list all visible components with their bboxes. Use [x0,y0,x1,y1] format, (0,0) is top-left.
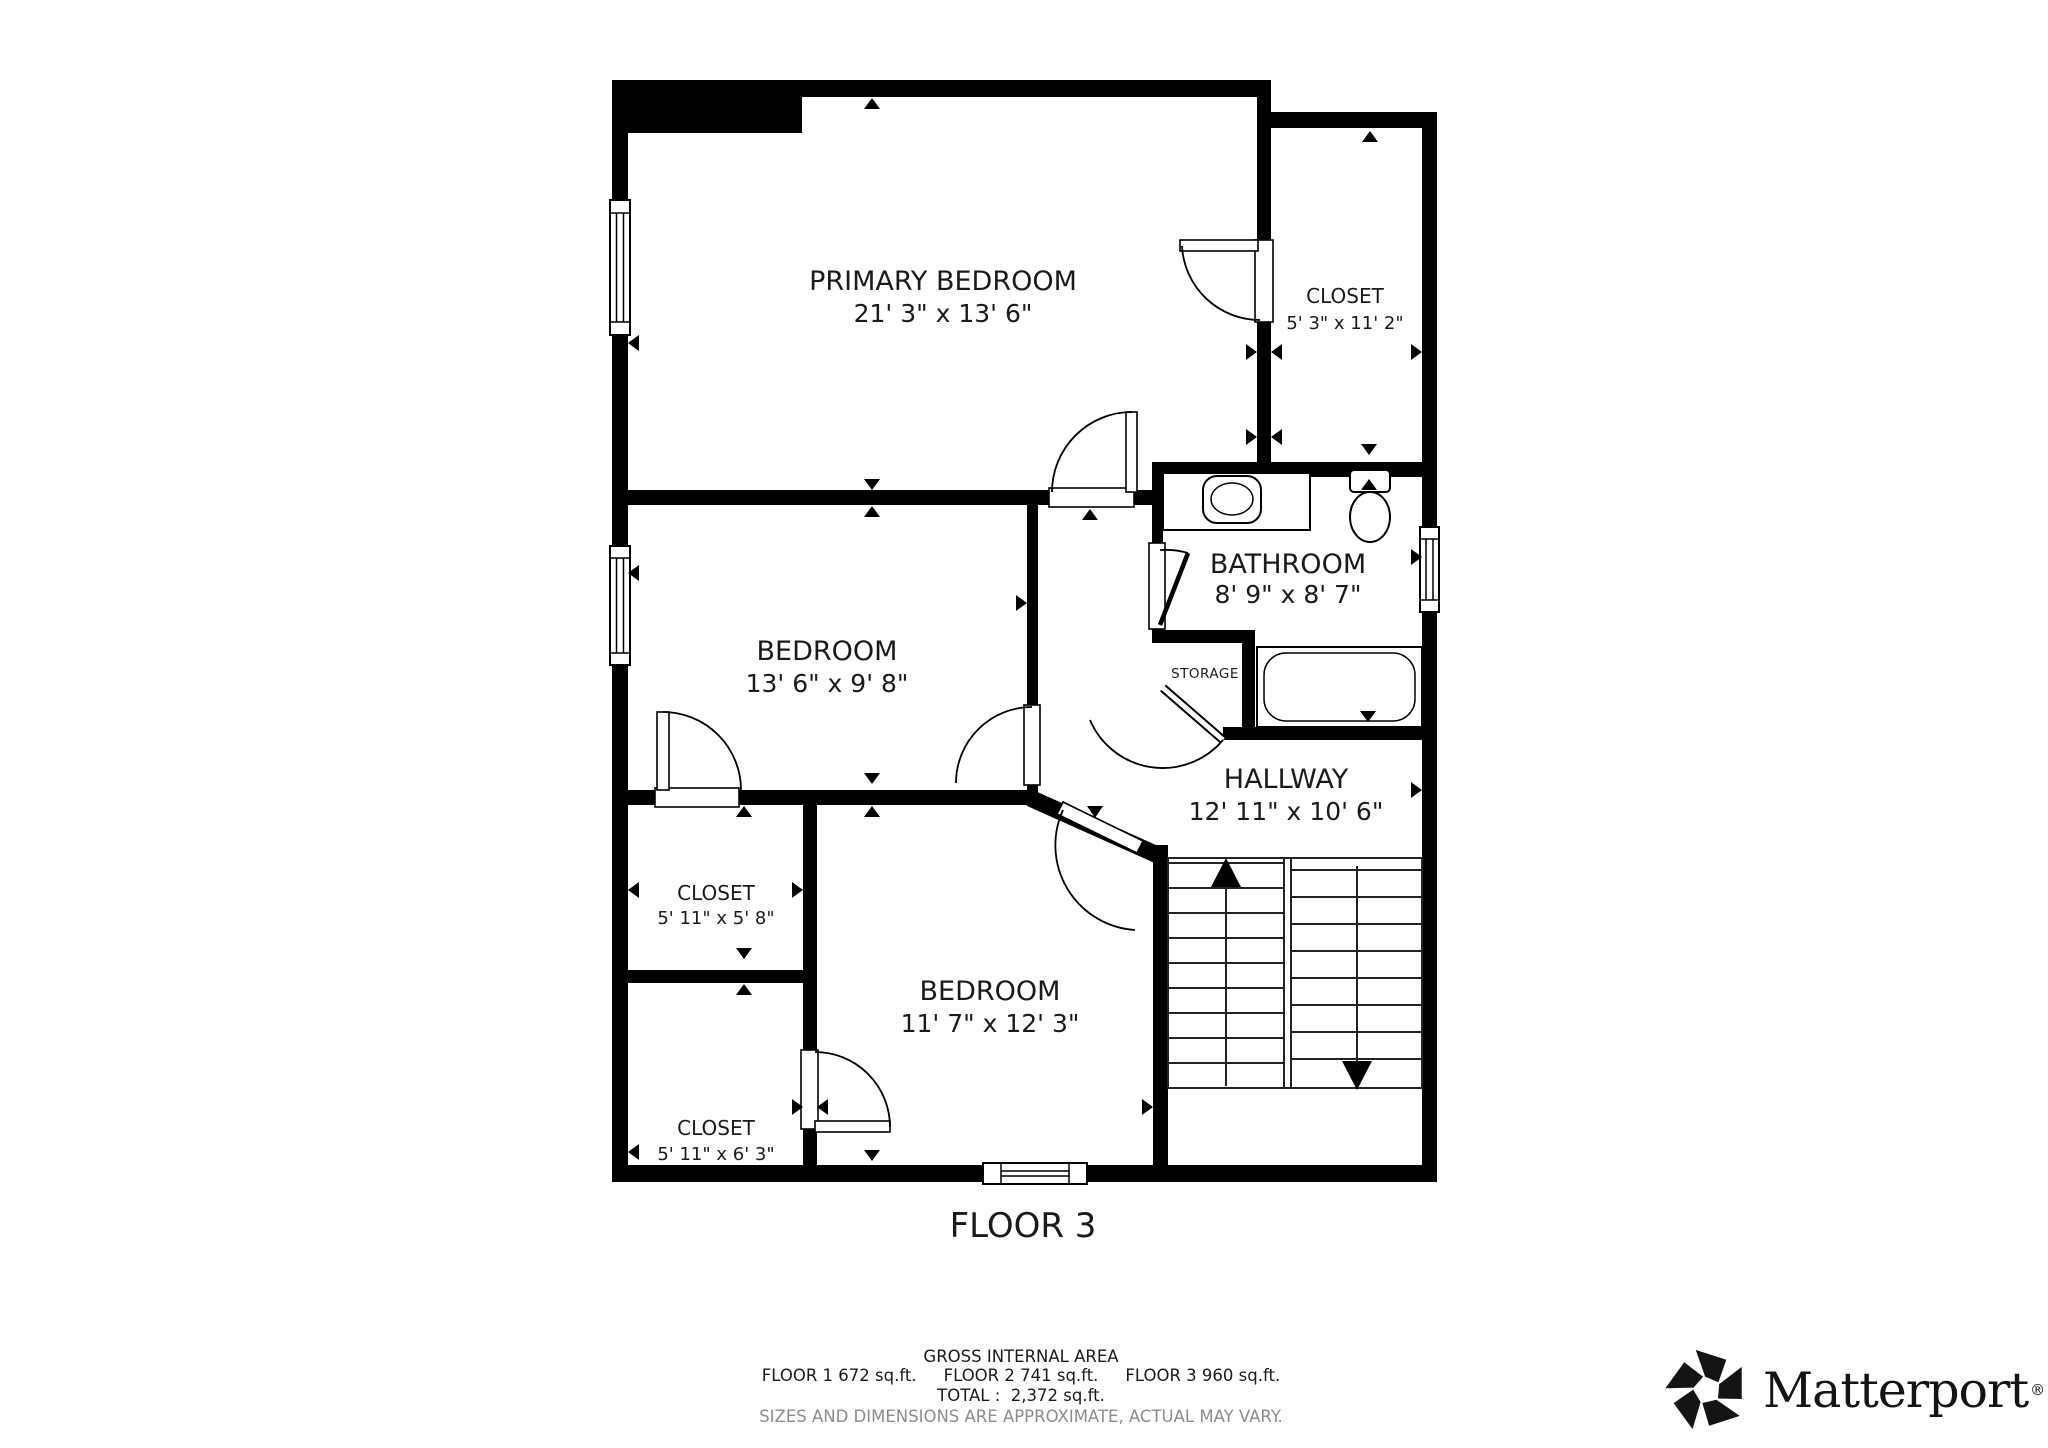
arrow-marker [628,882,639,898]
arrow-marker [792,882,803,898]
matterport-pinwheel-icon [1666,1348,1748,1432]
floor-3-area: FLOOR 3 960 sq.ft. [1125,1366,1280,1385]
closet-lower-dims: 5' 11" x 6' 3" [657,1144,774,1165]
bathtub-basin [1264,653,1415,721]
door-arc-midbedroom-bottom [663,712,741,790]
arrow-marker [864,806,880,817]
bedroom-middle-dims: 13' 6" x 9' 8" [746,669,909,698]
window-bedroom-bottom [983,1163,1087,1184]
floor-areas-line: FLOOR 1 672 sq.ft. FLOOR 2 741 sq.ft. FL… [759,1366,1283,1385]
window-midbedroom-left [610,546,630,665]
area-summary-title: GROSS INTERNAL AREA [759,1347,1283,1366]
bathroom-dims: 8' 9" x 8' 7" [1215,580,1362,609]
floor-title: FLOOR 3 [950,1206,1097,1246]
door-leaf-storage [1163,688,1223,740]
bedroom-middle-label: BEDROOM [757,636,898,667]
closet-upper-dims: 5' 11" x 5' 8" [657,908,774,929]
door-sill-midbedroom-bottom [655,788,739,807]
bathroom-label: BATHROOM [1210,549,1366,580]
arrow-marker [1246,429,1257,445]
bedroom-bottom-dims: 11' 7" x 12' 3" [901,1009,1080,1038]
primary-bedroom-label: PRIMARY BEDROOM [809,266,1077,297]
wall-top-left-notch [612,80,802,133]
wall-right [1422,112,1437,1182]
door-arc-primary [1052,412,1132,492]
wall-storage-right [1242,630,1255,740]
registered-trademark-icon: ® [2030,1381,2045,1399]
arrow-marker [1271,344,1282,360]
floorplan-drawing: PRIMARY BEDROOM 21' 3" x 13' 6" CLOSET 5… [0,0,2048,1448]
wall-closet-top [1270,112,1437,128]
door-sill-midbedroom [1024,705,1040,785]
arrow-marker [864,479,880,490]
arrow-marker [736,984,752,995]
arrow-marker [864,98,880,109]
arrow-marker [1246,344,1257,360]
door-arc-closet-lower [815,1052,890,1127]
wall-storage-top [1163,630,1255,643]
arrow-marker [1142,1099,1153,1115]
arrow-marker [736,948,752,959]
primary-bedroom-dims: 21' 3" x 13' 6" [854,299,1033,328]
closet-top-label: CLOSET [1306,284,1384,308]
staircase [1168,858,1422,1090]
arrow-marker [1411,344,1422,360]
bedroom-bottom-label: BEDROOM [920,976,1061,1007]
door-sill-closet-top [1255,240,1273,322]
door-arc-midbedroom [956,707,1032,783]
door-leaf-closet-lower [815,1121,890,1132]
hallway-dims: 12' 11" x 10' 6" [1189,797,1384,826]
door-arc-closet-top [1182,246,1260,320]
arrow-marker [1082,509,1098,520]
toilet-bowl [1350,492,1390,542]
arrow-marker [864,1150,880,1161]
arrow-marker [1411,782,1422,798]
disclaimer-text: SIZES AND DIMENSIONS ARE APPROXIMATE, AC… [759,1407,1283,1426]
floor-2-area: FLOOR 2 741 sq.ft. [944,1366,1099,1385]
hallway-label: HALLWAY [1224,764,1349,795]
arrow-marker [1361,444,1377,455]
door-sill-closet-lower [801,1050,818,1129]
arrow-marker [1016,595,1027,611]
stairs-down-arrow-icon [1342,1061,1372,1090]
wall-bathroom-bottom [1223,727,1422,740]
door-leaf-closet-top [1180,240,1258,251]
matterport-logo: Matterport® [1666,1348,2045,1432]
matterport-wordmark: Matterport [1763,1366,2028,1415]
sink-basin-inner [1211,483,1253,515]
floor-1-area: FLOOR 1 672 sq.ft. [762,1366,917,1385]
door-leaf-primary [1126,412,1137,492]
closet-lower-label: CLOSET [677,1116,755,1140]
arrow-marker [628,335,639,351]
door-leaf-midbedroom-bottom [657,712,669,790]
arrow-marker [1271,429,1282,445]
wall-bedroom-right [1153,845,1168,1182]
wall-closet-divider-horizontal [612,970,817,983]
storage-label: STORAGE [1171,666,1239,682]
stairs-outline [1168,858,1422,1088]
door-sill-primary [1049,488,1134,507]
total-area: TOTAL : 2,372 sq.ft. [759,1386,1283,1405]
arrow-marker [1362,131,1378,142]
arrow-marker [864,773,880,784]
arrow-marker [864,506,880,517]
floorplan-page: PRIMARY BEDROOM 21' 3" x 13' 6" CLOSET 5… [0,0,2048,1448]
arrow-marker [628,1144,639,1160]
closet-upper-label: CLOSET [677,881,755,905]
window-primary-left [610,200,630,335]
closet-top-dims: 5' 3" x 11' 2" [1286,313,1403,334]
area-summary: GROSS INTERNAL AREA FLOOR 1 672 sq.ft. F… [759,1347,1283,1426]
